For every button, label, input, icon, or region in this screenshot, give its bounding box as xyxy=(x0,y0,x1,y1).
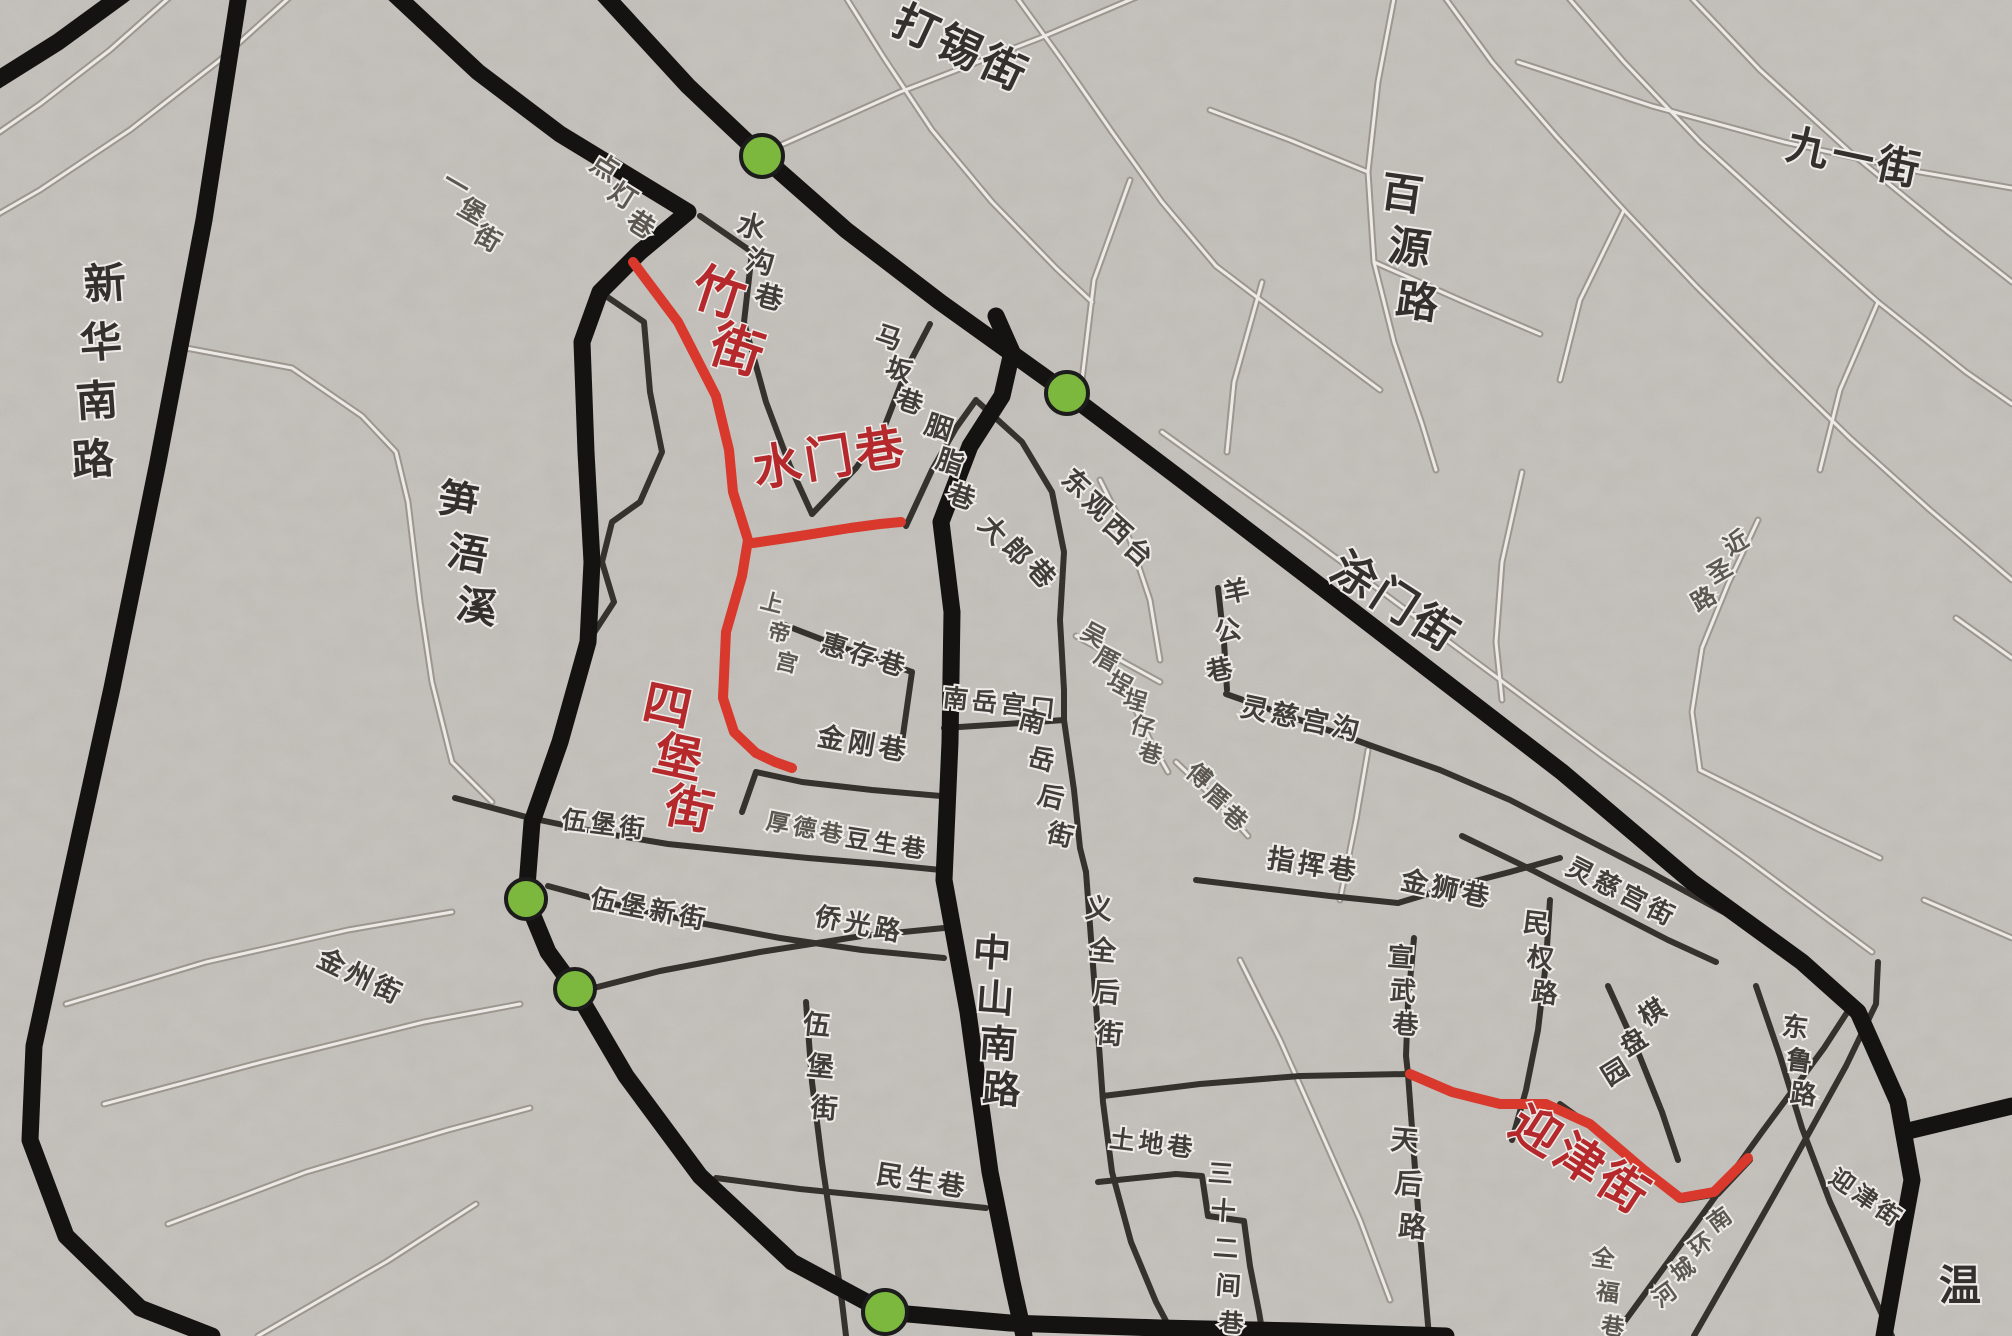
street-label-天后路-char1: 后 xyxy=(1393,1167,1424,1200)
street-label-民权路-char1: 权 xyxy=(1525,941,1555,974)
street-label-义全后街-char1: 全 xyxy=(1087,934,1119,967)
map-canvas: 竹街水门巷四堡街迎津街打锡街九一街百源路新华南路笋浯溪涂门街中山南路温点灯巷一堡… xyxy=(0,0,2012,1336)
street-label-全福巷-char0: 全 xyxy=(1589,1243,1617,1272)
street-label-义全后街-char2: 后 xyxy=(1091,976,1121,1008)
street-label-温: 温 xyxy=(1939,1262,1985,1309)
street-label-新华南路-char1: 华 xyxy=(78,317,123,367)
street-label-东鲁路-char1: 鲁 xyxy=(1784,1044,1813,1077)
street-label-三十二间巷-char0: 三 xyxy=(1207,1159,1234,1189)
street-label-全福巷-char1: 福 xyxy=(1594,1278,1621,1307)
street-label-东鲁路-char0: 东 xyxy=(1780,1011,1809,1044)
street-label-天后路-char2: 路 xyxy=(1397,1210,1429,1243)
street-label-新华南路-char0: 新 xyxy=(82,259,127,309)
street-label-中山南路-char3: 路 xyxy=(981,1068,1023,1113)
street-label-宣武巷-char1: 武 xyxy=(1389,975,1417,1007)
poi-marker-junction-wubao-south xyxy=(555,969,595,1009)
street-label-百源路-char2: 路 xyxy=(1393,276,1442,329)
street-label-义全后街-char0: 义 xyxy=(1084,893,1114,925)
street-label-天后路-char0: 天 xyxy=(1390,1124,1421,1157)
street-label-伍堡街-char2: 街 xyxy=(808,1092,839,1124)
street-label-三十二间巷-char4: 巷 xyxy=(1217,1308,1246,1336)
street-label-笋浯溪-char0: 笋 xyxy=(435,476,482,526)
street-label-中山南路-char0: 中 xyxy=(971,932,1012,977)
street-label-宣武巷-char2: 巷 xyxy=(1390,1009,1420,1041)
city-street-map: 竹街水门巷四堡街迎津街打锡街九一街百源路新华南路笋浯溪涂门街中山南路温点灯巷一堡… xyxy=(0,0,2012,1336)
street-label-三十二间巷-char2: 二 xyxy=(1212,1234,1239,1264)
street-label-民权路-char2: 路 xyxy=(1530,976,1560,1009)
street-label-笋浯溪-char2: 溪 xyxy=(453,582,500,632)
street-label-三十二间巷-char1: 十 xyxy=(1210,1197,1237,1227)
street-label-百源路-char1: 源 xyxy=(1386,222,1434,274)
street-label-全福巷-char2: 巷 xyxy=(1599,1312,1627,1336)
street-label-宣武巷-char0: 宣 xyxy=(1387,941,1415,973)
street-label-民权路-char0: 民 xyxy=(1521,907,1550,940)
street-label-三十二间巷-char3: 间 xyxy=(1215,1271,1242,1301)
street-label-百源路-char0: 百 xyxy=(1378,167,1426,219)
map-background xyxy=(0,0,2012,1336)
street-label-伍堡街-char0: 伍 xyxy=(802,1009,832,1041)
street-label-义全后街-char3: 街 xyxy=(1094,1018,1125,1050)
poi-marker-junction-wubao-north xyxy=(506,879,546,919)
grain-texture xyxy=(0,0,2012,1336)
poi-marker-junction-dashi-street xyxy=(741,135,783,177)
street-label-东鲁路-char2: 路 xyxy=(1789,1078,1819,1111)
street-label-笋浯溪-char1: 浯 xyxy=(444,529,491,579)
street-label-中山南路-char1: 山 xyxy=(975,977,1016,1022)
street-label-中山南路-char2: 南 xyxy=(978,1023,1019,1068)
street-label-新华南路-char2: 南 xyxy=(74,376,119,426)
poi-marker-junction-tumen-street xyxy=(1046,372,1088,414)
street-label-新华南路-char3: 路 xyxy=(70,435,116,485)
poi-marker-junction-south-trunk xyxy=(863,1290,907,1334)
street-label-伍堡街-char1: 堡 xyxy=(806,1050,836,1083)
